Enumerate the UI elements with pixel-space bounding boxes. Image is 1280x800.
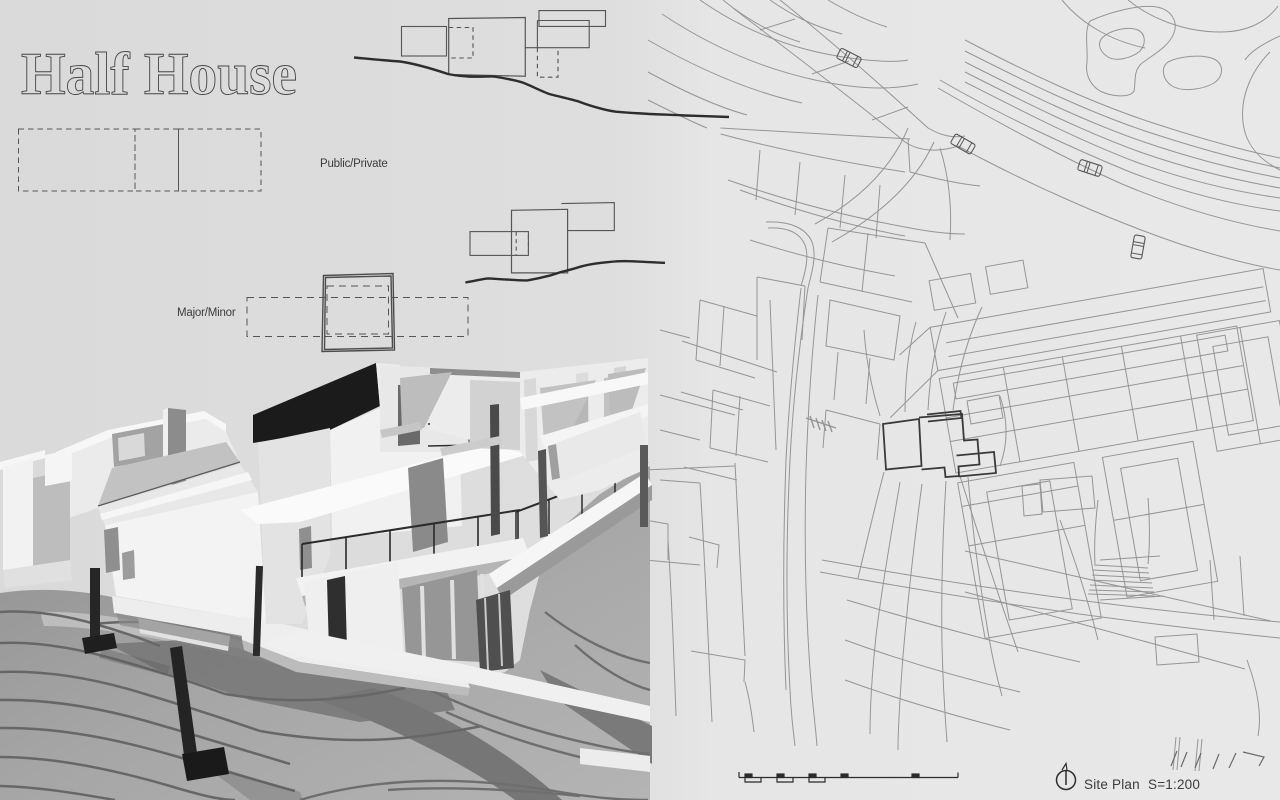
svg-text:Major/Minor: Major/Minor	[177, 307, 236, 319]
svg-text:Half House: Half House	[21, 41, 297, 107]
svg-text:Site Plan: Site Plan	[1084, 777, 1140, 792]
svg-text:Public/Private: Public/Private	[320, 158, 388, 170]
svg-text:S=1:200: S=1:200	[1148, 777, 1200, 792]
